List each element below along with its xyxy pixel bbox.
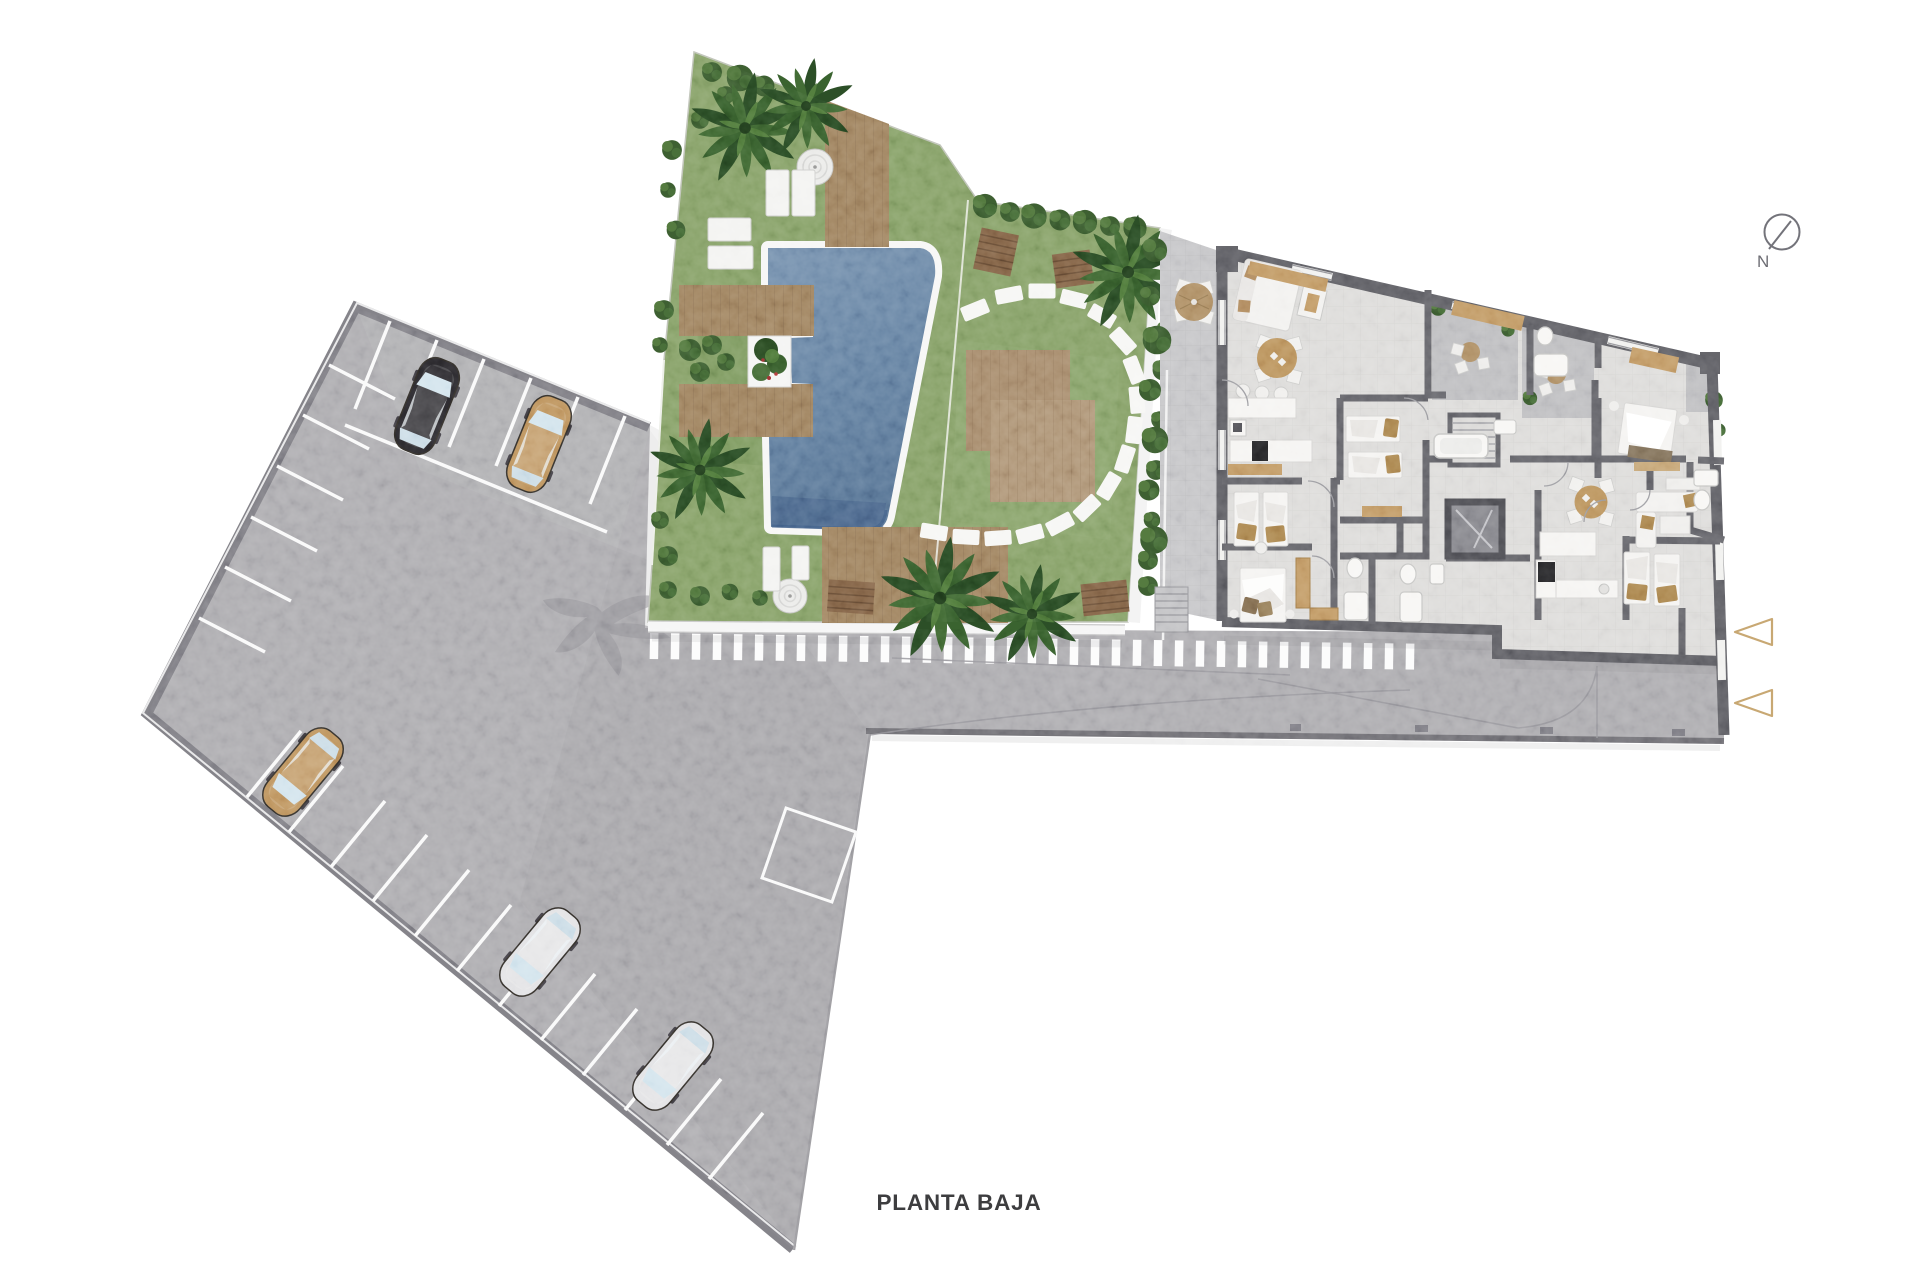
svg-text:N: N xyxy=(1757,252,1769,271)
svg-text:PLANTA BAJA: PLANTA BAJA xyxy=(876,1190,1041,1215)
